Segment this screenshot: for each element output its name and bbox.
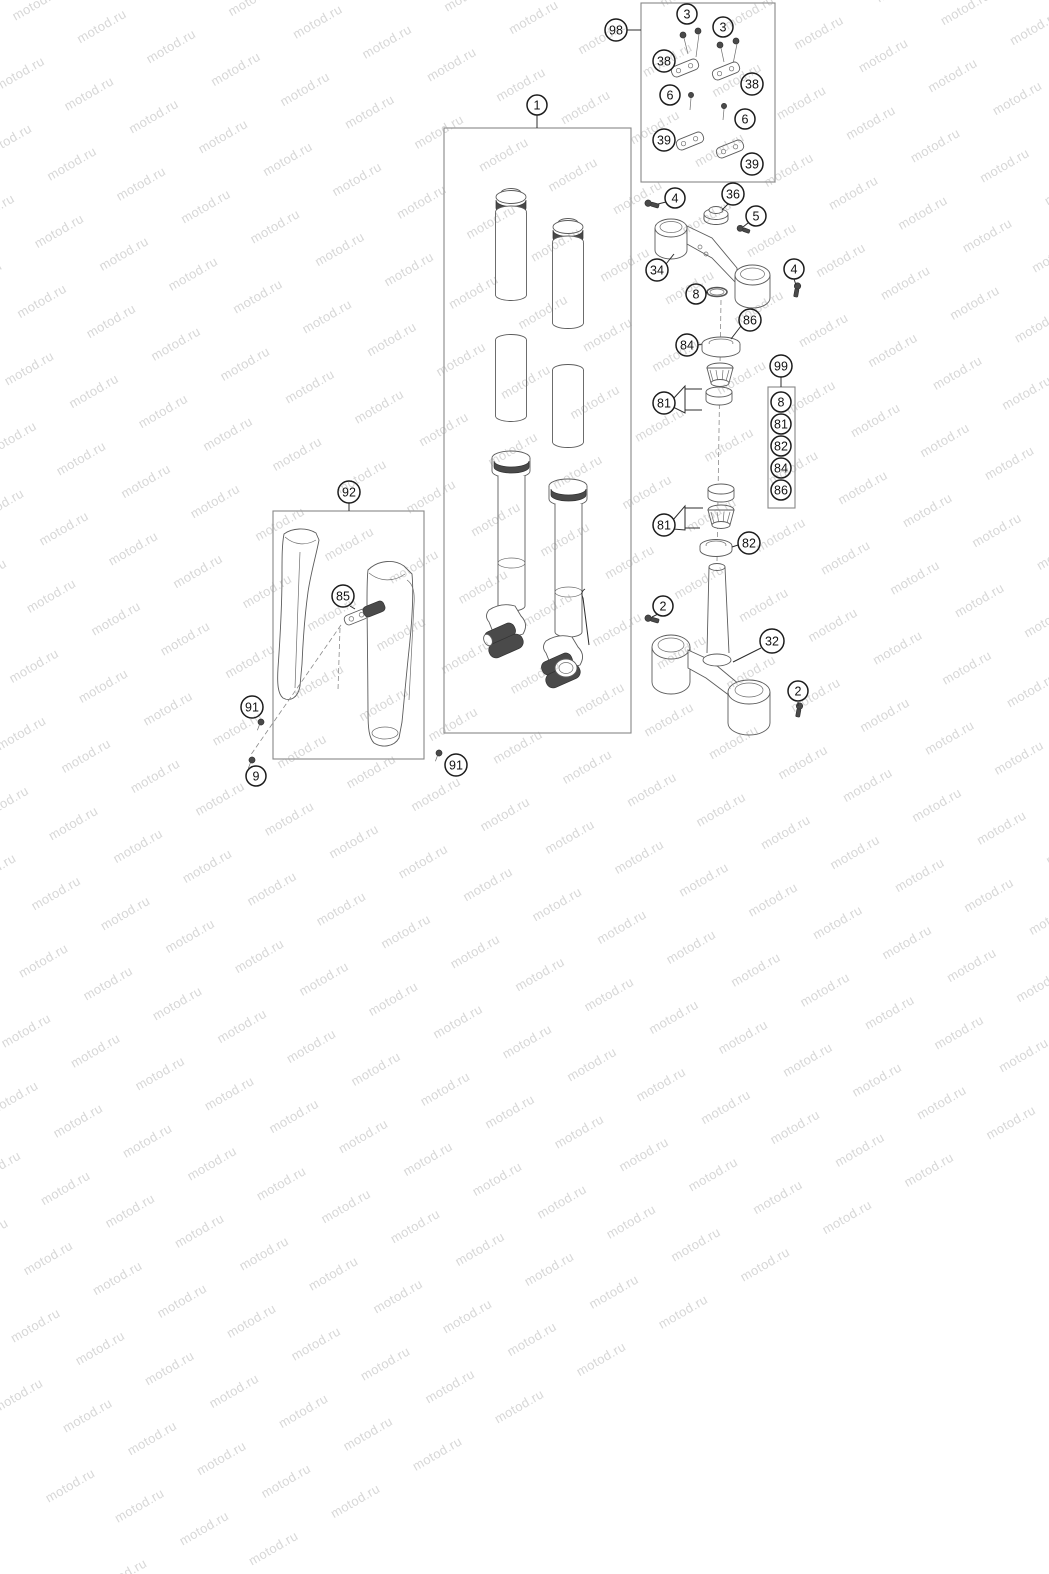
callout-92[interactable]: 92 <box>338 481 360 503</box>
exploded-parts-drawing: 9833383866393914365344886849981881828486… <box>0 0 1049 787</box>
callout-number: 1 <box>534 98 541 112</box>
callout-34[interactable]: 34 <box>646 259 668 281</box>
callout-number: 81 <box>657 518 671 532</box>
callout-81[interactable]: 81 <box>653 392 675 414</box>
callout-3-2[interactable]: 3 <box>713 17 733 37</box>
callout-number: 38 <box>745 77 759 91</box>
fork-parts-diagram-page: 9833383866393914365344886849981881828486… <box>0 0 1049 787</box>
callout-number: 86 <box>774 483 788 497</box>
callout-86[interactable]: 86 <box>739 309 761 331</box>
callout-91[interactable]: 91 <box>241 696 263 718</box>
fork-assembly-drawing <box>482 189 589 691</box>
callout-number: 36 <box>726 187 740 201</box>
callout-82-2[interactable]: 82 <box>738 532 760 554</box>
callout-number: 34 <box>650 263 664 277</box>
callout-number: 91 <box>245 700 259 714</box>
callout-number: 82 <box>742 536 756 550</box>
callout-number: 81 <box>657 396 671 410</box>
callout-39[interactable]: 39 <box>653 129 675 151</box>
callout-number: 2 <box>795 684 802 698</box>
lower-triple-clamp <box>652 564 770 736</box>
callout-number: 84 <box>680 338 694 352</box>
axle-clamp-right <box>540 636 583 691</box>
callout-6-2[interactable]: 6 <box>735 109 755 129</box>
fork-leg-left <box>482 189 530 661</box>
callout-number: 99 <box>774 359 788 373</box>
callout-36[interactable]: 36 <box>722 183 744 205</box>
callout-2[interactable]: 2 <box>653 596 673 616</box>
callout-number: 98 <box>609 23 623 37</box>
callout-99[interactable]: 99 <box>770 355 792 377</box>
screw-icon <box>245 718 443 769</box>
upper-bearing-stack <box>702 337 740 405</box>
callout-8[interactable]: 8 <box>686 284 706 304</box>
callout-91-2[interactable]: 91 <box>445 754 467 776</box>
callout-number: 39 <box>657 133 671 147</box>
callout-number: 39 <box>745 157 759 171</box>
callout-3[interactable]: 3 <box>677 4 697 24</box>
fork-protector-right <box>367 561 414 746</box>
lower-bearing-stack <box>700 484 734 557</box>
callout-number: 92 <box>342 485 356 499</box>
callout-39-2[interactable]: 39 <box>741 153 763 175</box>
callout-32[interactable]: 32 <box>760 629 784 653</box>
callout-number: 81 <box>774 417 788 431</box>
callout-8-2[interactable]: 8 <box>771 392 791 412</box>
callout-98[interactable]: 98 <box>605 19 627 41</box>
callout-38[interactable]: 38 <box>653 50 675 72</box>
callout-number: 2 <box>660 599 667 613</box>
callout-85[interactable]: 85 <box>332 585 354 607</box>
callout-number: 6 <box>742 112 749 126</box>
callout-number: 3 <box>684 7 691 21</box>
callout-82[interactable]: 82 <box>771 436 791 456</box>
callout-number: 5 <box>753 209 760 223</box>
callout-81-3[interactable]: 81 <box>653 514 675 536</box>
callout-number: 38 <box>657 54 671 68</box>
callout-number: 9 <box>253 769 260 783</box>
callout-86-2[interactable]: 86 <box>771 480 791 500</box>
callout-6[interactable]: 6 <box>660 85 680 105</box>
callout-number: 8 <box>778 395 785 409</box>
callout-number: 84 <box>774 461 788 475</box>
fork-protector-drawing <box>245 529 443 769</box>
callout-number: 91 <box>449 758 463 772</box>
callout-number: 32 <box>765 634 779 648</box>
callout-number: 8 <box>693 287 700 301</box>
box-1 <box>444 128 631 733</box>
callout-4-2[interactable]: 4 <box>784 259 804 279</box>
fork-leg-right <box>540 219 589 691</box>
o-ring <box>707 288 727 297</box>
callout-4[interactable]: 4 <box>665 188 685 208</box>
callout-number: 4 <box>791 262 798 276</box>
callout-number: 4 <box>672 191 679 205</box>
callout-number: 86 <box>743 313 757 327</box>
callout-2-2[interactable]: 2 <box>788 681 808 701</box>
callout-number: 6 <box>667 88 674 102</box>
callout-1[interactable]: 1 <box>527 95 547 115</box>
callout-38-2[interactable]: 38 <box>741 73 763 95</box>
clamp-hardware-drawing <box>670 28 745 159</box>
callout-number: 3 <box>720 20 727 34</box>
callout-9[interactable]: 9 <box>246 766 266 786</box>
callout-5[interactable]: 5 <box>746 206 766 226</box>
fork-protector-left <box>278 529 319 700</box>
callout-number: 82 <box>774 439 788 453</box>
callout-81-2[interactable]: 81 <box>771 414 791 434</box>
steering-stem-nut <box>704 207 728 225</box>
callout-number: 85 <box>336 589 350 603</box>
callout-84-2[interactable]: 84 <box>771 458 791 478</box>
axle-clamp-left <box>482 605 526 661</box>
clamp-plate-icon <box>670 58 745 160</box>
callout-84[interactable]: 84 <box>676 334 698 356</box>
